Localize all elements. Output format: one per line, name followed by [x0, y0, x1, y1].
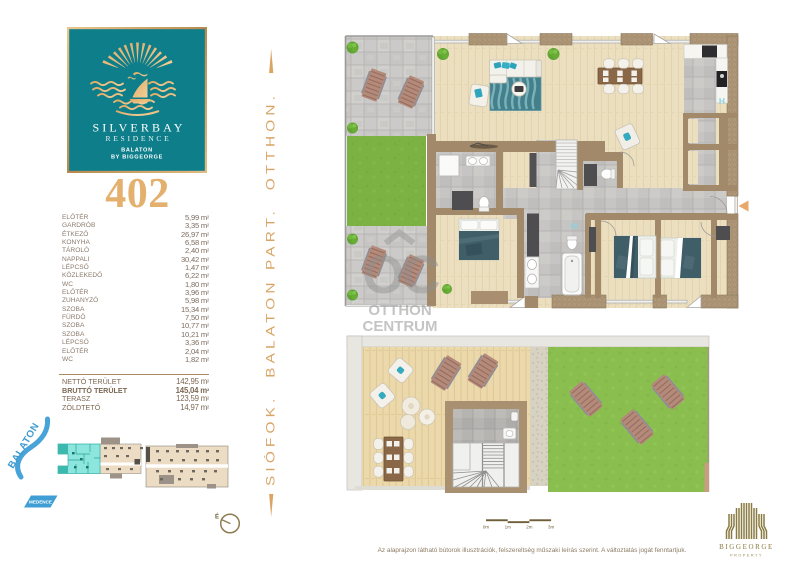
svg-text:SIÓFOK. BALATON PART. OTTHON: SIÓFOK. BALATON PART. OTTHON.: [264, 92, 278, 486]
svg-text:CENTRUM: CENTRUM: [363, 318, 438, 335]
svg-text:0m: 0m: [483, 525, 490, 530]
svg-text:OTTHON: OTTHON: [368, 302, 431, 319]
svg-text:1m: 1m: [505, 525, 512, 530]
svg-text:MEDENCE: MEDENCE: [29, 500, 52, 505]
svg-text:É: É: [215, 513, 219, 521]
svg-text:OC: OC: [363, 245, 440, 305]
svg-text:BIGGEORGE: BIGGEORGE: [719, 543, 774, 551]
svg-text:3m: 3m: [548, 525, 555, 530]
svg-text:2m: 2m: [526, 525, 533, 530]
svg-text:PROPERTY: PROPERTY: [730, 554, 763, 558]
svg-text:H: H: [719, 96, 725, 106]
svg-text:M: M: [570, 221, 577, 231]
